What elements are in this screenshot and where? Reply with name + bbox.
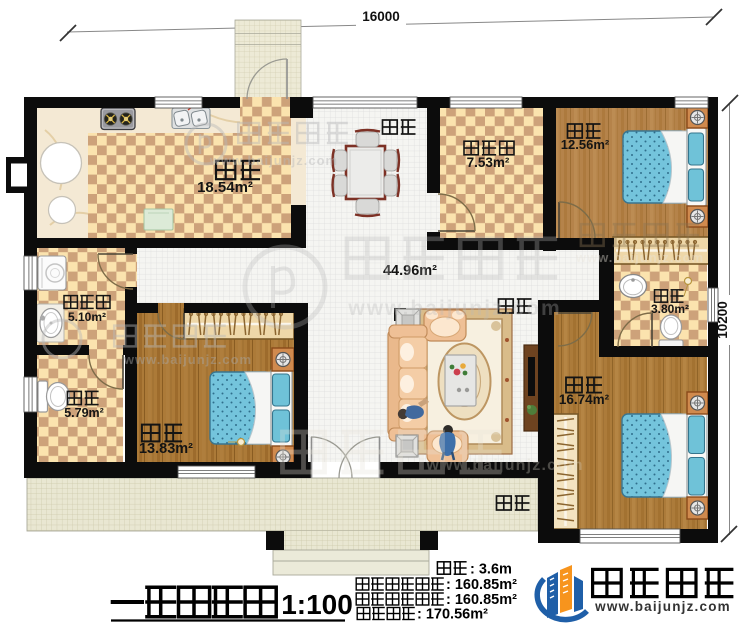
- svg-text:1:100: 1:100: [281, 589, 353, 620]
- svg-text:: 160.85m²: : 160.85m²: [446, 577, 517, 593]
- svg-text:www.baijunjz.com: www.baijunjz.com: [209, 153, 338, 168]
- svg-text:10200: 10200: [715, 301, 730, 339]
- svg-text:www.baijunjz.com: www.baijunjz.com: [575, 250, 704, 265]
- svg-text:www.baijunjz.com: www.baijunjz.com: [347, 297, 561, 320]
- svg-text:16.74m²: 16.74m²: [559, 392, 610, 407]
- svg-text:3.80m²: 3.80m²: [651, 302, 689, 316]
- svg-text:www.baijunjz.com: www.baijunjz.com: [425, 457, 583, 474]
- svg-text:5.79m²: 5.79m²: [64, 406, 104, 420]
- svg-text:13.83m²: 13.83m²: [139, 441, 193, 457]
- svg-text:5.10m²: 5.10m²: [68, 310, 106, 324]
- svg-text:16000: 16000: [362, 9, 400, 24]
- svg-text:: 170.56m²: : 170.56m²: [417, 607, 488, 623]
- svg-text:12.56m²: 12.56m²: [561, 137, 610, 152]
- svg-text:7.53m²: 7.53m²: [467, 155, 510, 170]
- svg-text:www.baijunjz.com: www.baijunjz.com: [594, 599, 731, 614]
- svg-text:: 3.6m: : 3.6m: [470, 562, 512, 578]
- svg-text:www.baijunjz.com: www.baijunjz.com: [123, 352, 252, 367]
- svg-text:18.54m²: 18.54m²: [197, 179, 253, 196]
